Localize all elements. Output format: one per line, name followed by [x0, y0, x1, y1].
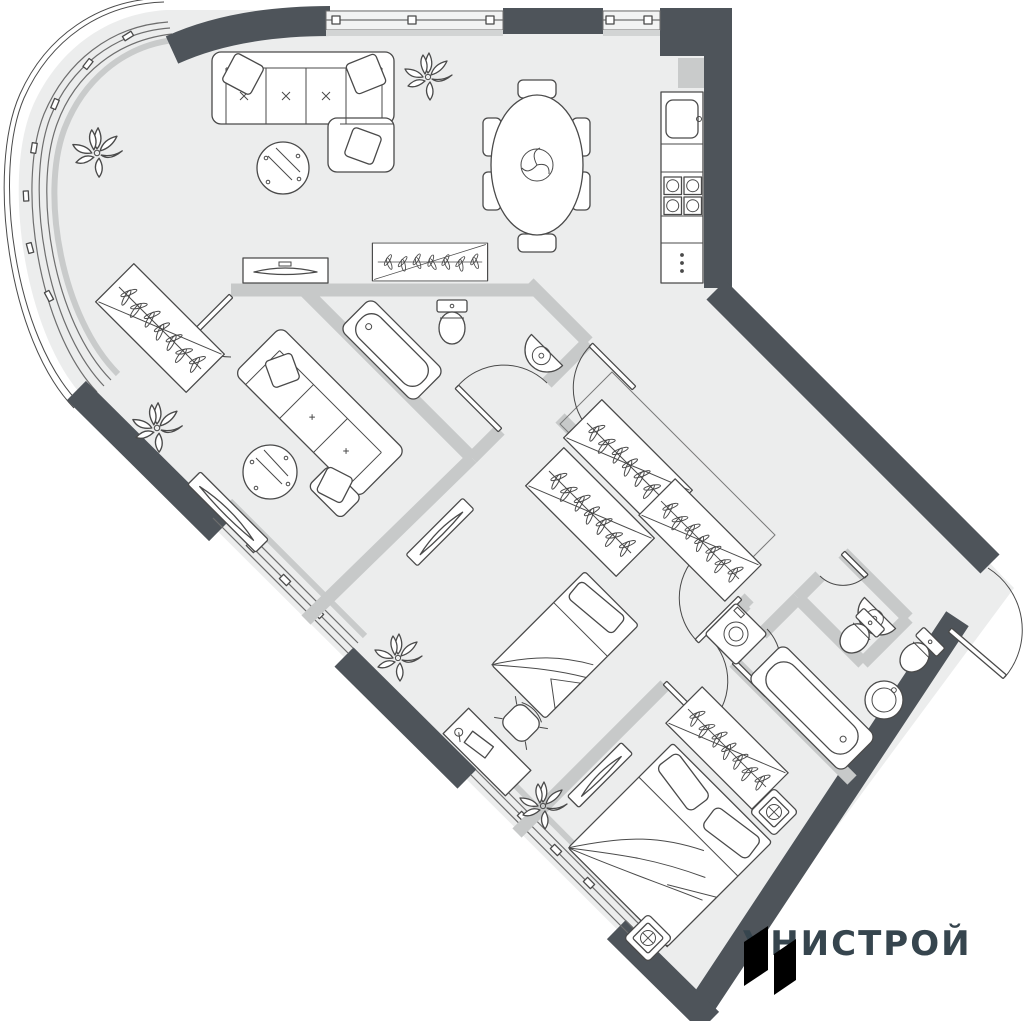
- window-top-right: [603, 11, 660, 36]
- floor-plan-drawing: [0, 0, 1024, 1021]
- floor-plan-page: УНИСТРОЙ: [0, 0, 1024, 1021]
- unistroy-logo: УНИСТРОЙ: [742, 924, 972, 964]
- tv-console: [243, 258, 328, 283]
- side-table-room2: [243, 445, 297, 499]
- unistroy-logo-mark: [742, 924, 802, 996]
- coat-rack: [372, 243, 487, 281]
- duct-niche: [678, 58, 704, 88]
- window-top-left: [326, 11, 503, 36]
- kitchen: [661, 92, 703, 283]
- kitchen-fridge: [680, 253, 684, 273]
- toilet-1: [437, 300, 467, 344]
- coffee-table: [257, 142, 309, 194]
- kitchen-sink: [666, 100, 702, 138]
